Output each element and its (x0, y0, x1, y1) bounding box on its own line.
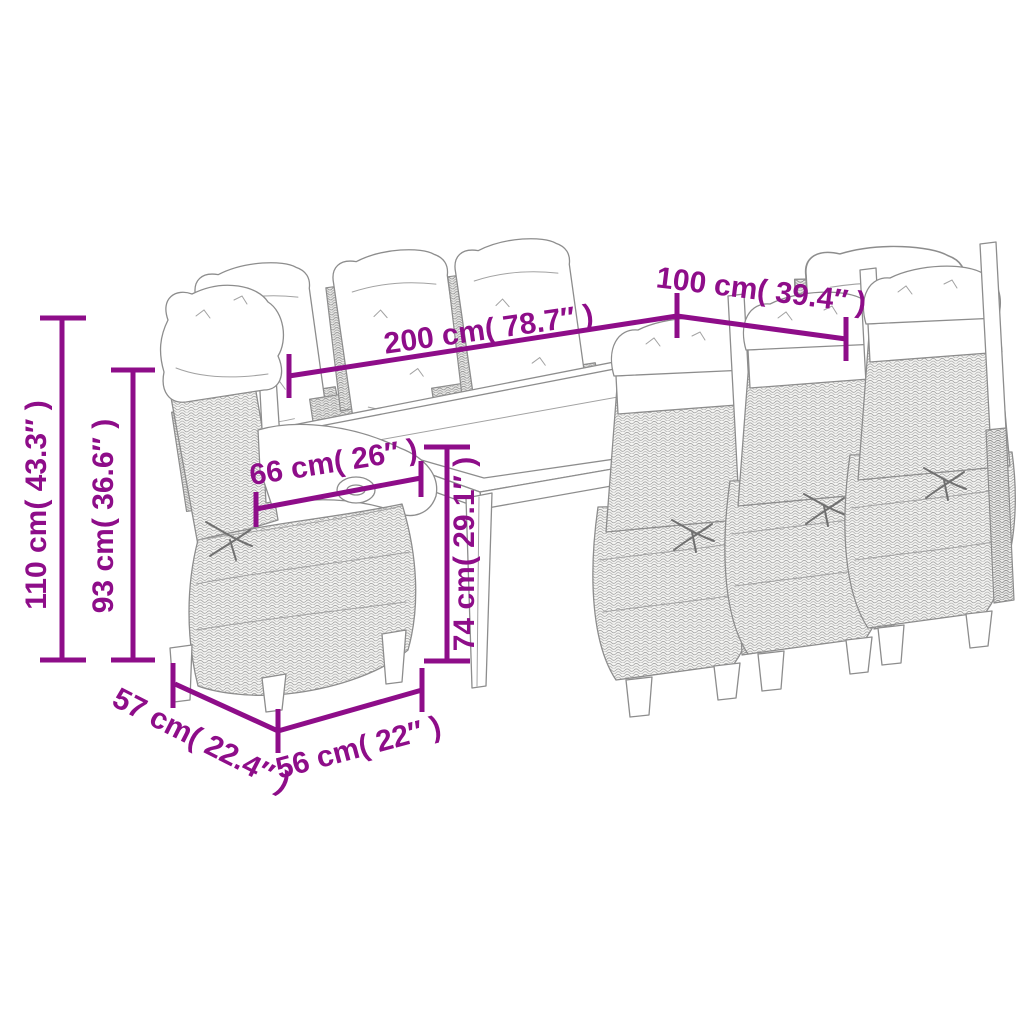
dim-label-table-height: 74 cm( 29.1″ ) (448, 457, 481, 651)
dimension-diagram: 110 cm( 43.3″ ) 93 cm( 36.6″ ) 74 cm( 29… (0, 0, 1024, 1024)
dim-back-height: 93 cm( 36.6″ ) (87, 370, 155, 660)
dim-label-back-height: 93 cm( 36.6″ ) (87, 419, 120, 613)
dim-overall-height: 110 cm( 43.3″ ) (20, 318, 86, 660)
dim-label-seat-width: 56 cm( 22″ ) (272, 710, 444, 786)
dim-label-overall-height: 110 cm( 43.3″ ) (20, 400, 53, 610)
chair-front-right (845, 242, 1015, 665)
product-illustration: 110 cm( 43.3″ ) 93 cm( 36.6″ ) 74 cm( 29… (0, 0, 1024, 1024)
